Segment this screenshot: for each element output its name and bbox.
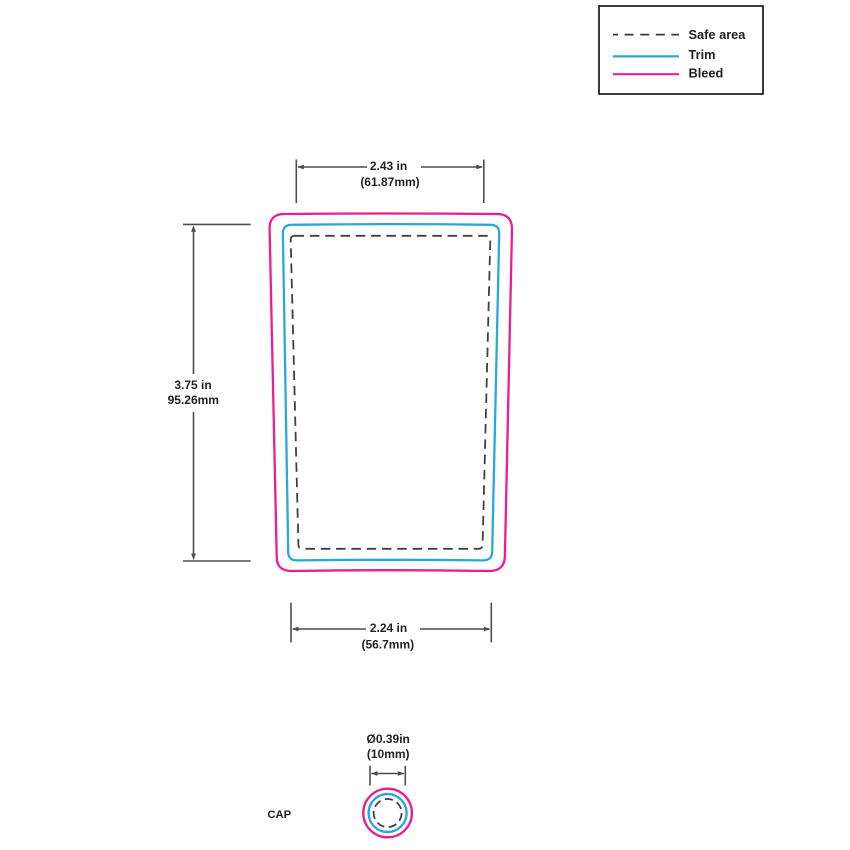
svg-text:Trim: Trim — [689, 47, 716, 62]
svg-text:Safe area: Safe area — [689, 27, 747, 42]
svg-text:3.75 in: 3.75 in — [174, 378, 211, 392]
svg-text:(61.87mm): (61.87mm) — [360, 175, 419, 189]
svg-text:(56.7mm): (56.7mm) — [361, 638, 414, 652]
svg-text:CAP: CAP — [267, 809, 291, 821]
svg-text:(10mm): (10mm) — [367, 747, 410, 761]
svg-text:Bleed: Bleed — [689, 66, 724, 81]
svg-text:Ø0.39in: Ø0.39in — [367, 732, 410, 746]
svg-text:2.43 in: 2.43 in — [370, 159, 407, 173]
svg-text:95.26mm: 95.26mm — [168, 393, 219, 407]
svg-text:2.24 in: 2.24 in — [370, 621, 407, 635]
